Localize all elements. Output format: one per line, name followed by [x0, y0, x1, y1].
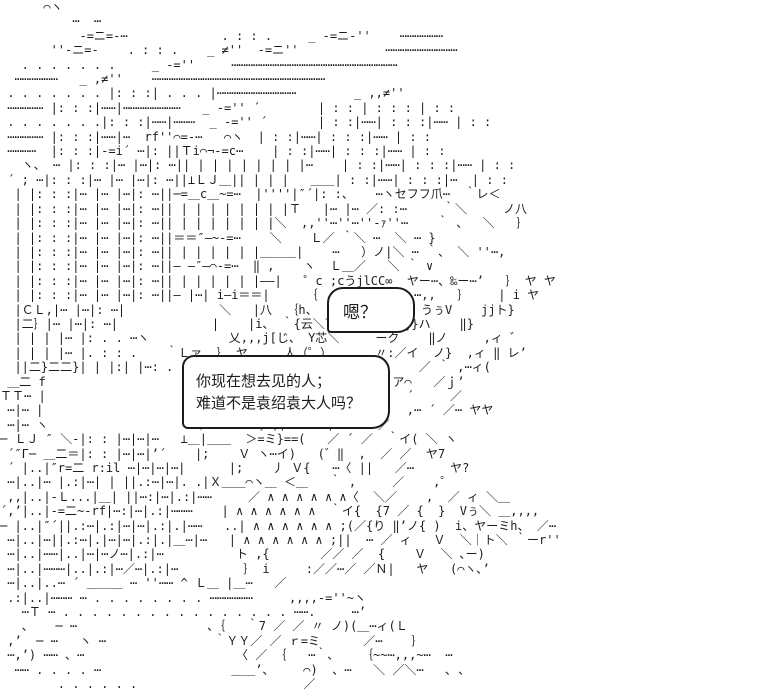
ascii-art: ⌒ヽ ⋯ ⋯ ‐=ニ=‐⋯ . : : . _ ‐=ニ‐'' ⋯⋯⋯⋯⋯⋯ ''… — [0, 0, 561, 692]
speech-bubble-main: 你现在想去见的人； 难道不是袁绍袁大人吗？ — [182, 355, 390, 429]
speech-bubble-small-text: 嗯？ — [343, 298, 413, 323]
speech-bubble-main-line-1: 你现在想去见的人； — [196, 370, 388, 392]
speech-bubble-small: 嗯？ — [327, 287, 415, 333]
speech-bubble-main-line-2: 难道不是袁绍袁大人吗？ — [196, 392, 388, 414]
ascii-art-scene: ⌒ヽ ⋯ ⋯ ‐=ニ=‐⋯ . : : . _ ‐=ニ‐'' ⋯⋯⋯⋯⋯⋯ ''… — [0, 0, 779, 694]
